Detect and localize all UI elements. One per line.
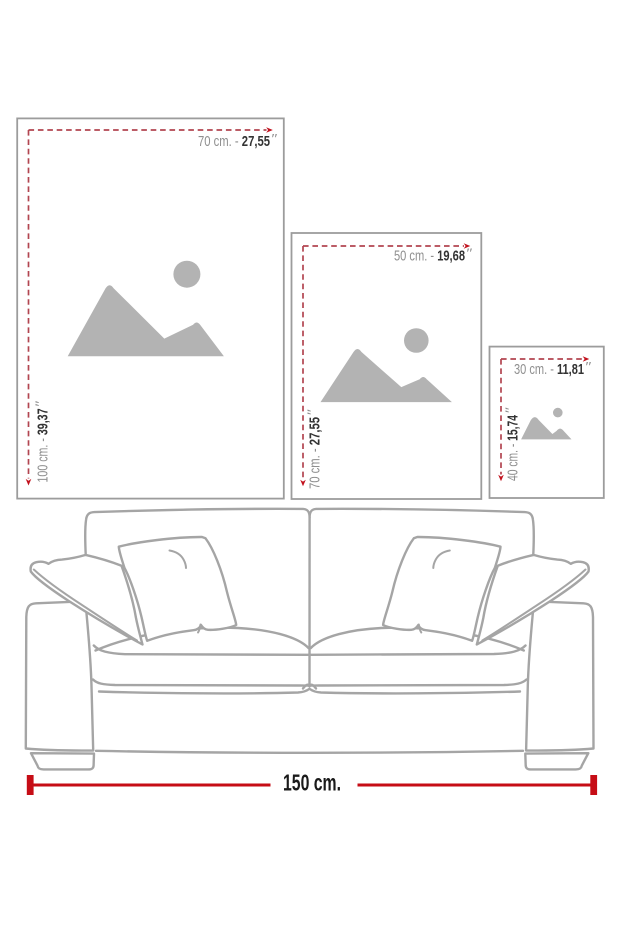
svg-text:50 cm. - 19,68: 50 cm. - 19,68 xyxy=(394,248,465,265)
svg-text:′′: ′′ xyxy=(503,407,518,413)
svg-text:′′: ′′ xyxy=(305,409,320,415)
svg-text:70 cm. - 27,55: 70 cm. - 27,55 xyxy=(198,133,270,150)
svg-text:′′: ′′ xyxy=(33,400,48,406)
svg-text:150 cm.: 150 cm. xyxy=(283,770,341,796)
svg-text:30 cm. - 11,81: 30 cm. - 11,81 xyxy=(514,361,584,378)
svg-text:40 cm. - 15,74: 40 cm. - 15,74 xyxy=(505,415,522,481)
svg-text:′′: ′′ xyxy=(467,246,473,261)
svg-text:100 cm. - 39,37: 100 cm. - 39,37 xyxy=(35,409,52,483)
svg-text:70 cm. - 27,55: 70 cm. - 27,55 xyxy=(307,417,324,489)
svg-text:′′: ′′ xyxy=(272,131,278,146)
svg-text:′′: ′′ xyxy=(586,359,592,374)
